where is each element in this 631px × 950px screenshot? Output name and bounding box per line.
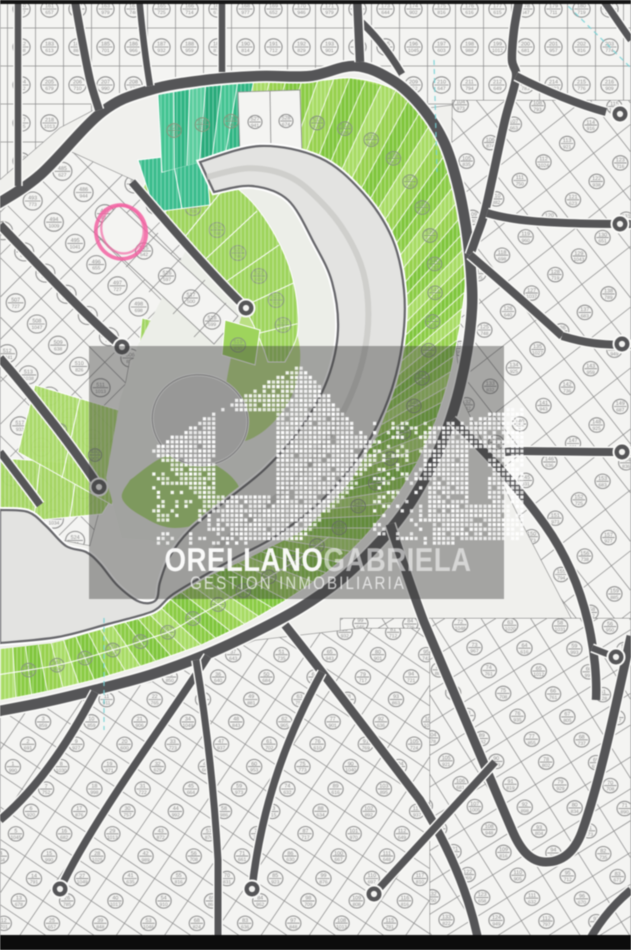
svg-text:683: 683 xyxy=(581,314,589,320)
svg-text:7: 7 xyxy=(45,784,48,790)
svg-text:657: 657 xyxy=(45,10,53,16)
svg-text:105: 105 xyxy=(410,739,419,745)
svg-text:794: 794 xyxy=(557,576,565,582)
svg-text:112: 112 xyxy=(398,828,407,834)
svg-text:125: 125 xyxy=(480,325,489,331)
svg-text:210: 210 xyxy=(437,80,446,86)
svg-text:973: 973 xyxy=(235,790,243,796)
svg-text:14: 14 xyxy=(31,873,37,879)
svg-text:20: 20 xyxy=(122,739,128,745)
svg-text:849: 849 xyxy=(406,183,414,189)
svg-text:112: 112 xyxy=(542,916,551,922)
svg-text:122: 122 xyxy=(592,176,601,182)
svg-text:45: 45 xyxy=(188,784,194,790)
svg-text:500: 500 xyxy=(187,299,195,305)
svg-text:114: 114 xyxy=(586,120,595,126)
svg-text:201: 201 xyxy=(549,42,558,48)
svg-text:687: 687 xyxy=(616,408,624,414)
svg-text:4: 4 xyxy=(0,851,2,857)
svg-text:943: 943 xyxy=(539,407,547,413)
svg-text:993: 993 xyxy=(570,650,578,656)
svg-text:83: 83 xyxy=(242,918,248,924)
svg-text:957: 957 xyxy=(549,48,557,54)
svg-text:843: 843 xyxy=(232,723,240,729)
svg-text:986: 986 xyxy=(220,813,228,819)
svg-text:644: 644 xyxy=(381,10,389,16)
svg-text:921: 921 xyxy=(442,762,450,768)
svg-text:216: 216 xyxy=(605,80,614,86)
svg-text:173: 173 xyxy=(381,4,390,10)
svg-text:109: 109 xyxy=(352,896,361,902)
svg-text:533: 533 xyxy=(313,118,322,124)
svg-text:794: 794 xyxy=(465,86,473,92)
svg-text:990: 990 xyxy=(9,768,17,774)
svg-text:112: 112 xyxy=(539,157,548,163)
svg-text:215: 215 xyxy=(577,80,586,86)
svg-text:99: 99 xyxy=(357,618,363,624)
svg-text:1009: 1009 xyxy=(48,223,59,229)
svg-text:202: 202 xyxy=(577,42,586,48)
svg-text:938: 938 xyxy=(593,183,601,189)
svg-text:207: 207 xyxy=(101,80,110,86)
svg-text:909: 909 xyxy=(605,86,613,92)
svg-text:670: 670 xyxy=(578,900,586,906)
svg-text:901: 901 xyxy=(325,48,333,54)
svg-text:709: 709 xyxy=(304,902,312,908)
svg-text:1048: 1048 xyxy=(455,626,466,632)
svg-text:992: 992 xyxy=(172,813,180,819)
svg-text:143: 143 xyxy=(586,363,595,369)
svg-text:701: 701 xyxy=(0,924,8,930)
svg-text:751: 751 xyxy=(431,265,439,271)
svg-text:1046: 1046 xyxy=(143,924,154,930)
svg-text:118: 118 xyxy=(498,250,507,256)
svg-text:174: 174 xyxy=(409,4,418,10)
svg-text:990: 990 xyxy=(45,857,53,863)
svg-text:74: 74 xyxy=(486,665,492,671)
svg-text:105: 105 xyxy=(442,756,451,762)
svg-text:137: 137 xyxy=(580,307,589,313)
svg-text:649: 649 xyxy=(493,86,501,92)
svg-text:117: 117 xyxy=(416,873,425,879)
svg-text:616: 616 xyxy=(520,649,528,655)
svg-text:761: 761 xyxy=(485,672,493,678)
svg-text:105: 105 xyxy=(462,156,471,162)
svg-text:509: 509 xyxy=(54,340,63,346)
svg-text:486: 486 xyxy=(79,187,88,193)
svg-text:697: 697 xyxy=(426,237,434,243)
svg-text:1012: 1012 xyxy=(492,48,503,54)
svg-text:22: 22 xyxy=(152,694,158,700)
svg-text:88: 88 xyxy=(318,806,324,812)
svg-text:752: 752 xyxy=(42,790,50,796)
svg-text:71: 71 xyxy=(622,803,628,809)
svg-text:600: 600 xyxy=(120,745,128,751)
svg-text:108: 108 xyxy=(485,824,494,830)
svg-text:90: 90 xyxy=(348,761,354,767)
svg-text:177: 177 xyxy=(493,4,502,10)
svg-text:108: 108 xyxy=(337,918,346,924)
svg-text:149: 149 xyxy=(616,401,625,407)
svg-text:83: 83 xyxy=(615,871,621,877)
svg-text:776: 776 xyxy=(577,86,585,92)
svg-text:542: 542 xyxy=(428,316,437,322)
svg-text:60: 60 xyxy=(251,761,257,767)
svg-text:95: 95 xyxy=(423,649,429,655)
svg-text:103: 103 xyxy=(379,784,388,790)
svg-text:652: 652 xyxy=(269,10,277,16)
svg-text:495: 495 xyxy=(71,238,80,244)
svg-text:527: 527 xyxy=(251,117,260,123)
svg-text:516: 516 xyxy=(163,271,172,277)
svg-text:56: 56 xyxy=(191,851,197,857)
svg-text:97: 97 xyxy=(290,918,296,924)
svg-text:534: 534 xyxy=(340,123,349,129)
svg-text:721: 721 xyxy=(407,678,415,684)
svg-text:517: 517 xyxy=(187,293,196,299)
svg-text:123: 123 xyxy=(478,892,487,898)
svg-text:691: 691 xyxy=(24,745,32,751)
svg-text:881: 881 xyxy=(247,701,255,707)
svg-text:188: 188 xyxy=(185,42,194,48)
svg-text:127: 127 xyxy=(527,288,536,294)
svg-text:538: 538 xyxy=(418,202,427,208)
svg-text:130: 130 xyxy=(598,232,607,238)
svg-text:682: 682 xyxy=(60,835,68,841)
svg-text:920: 920 xyxy=(27,813,35,819)
svg-text:634: 634 xyxy=(25,671,33,677)
svg-text:959: 959 xyxy=(185,48,193,54)
svg-text:949: 949 xyxy=(492,922,500,928)
svg-text:48: 48 xyxy=(233,717,239,723)
svg-text:165: 165 xyxy=(157,4,166,10)
svg-text:13: 13 xyxy=(16,896,22,902)
svg-text:113: 113 xyxy=(563,138,572,144)
svg-text:176: 176 xyxy=(465,4,474,10)
svg-text:55: 55 xyxy=(176,873,182,879)
svg-text:647: 647 xyxy=(437,86,445,92)
svg-text:53: 53 xyxy=(146,918,152,924)
svg-text:2: 2 xyxy=(27,739,30,745)
svg-text:111: 111 xyxy=(383,851,391,857)
svg-text:190: 190 xyxy=(241,42,250,48)
svg-text:946: 946 xyxy=(297,10,305,16)
svg-text:101: 101 xyxy=(349,828,358,834)
svg-text:169: 169 xyxy=(269,4,278,10)
svg-text:973: 973 xyxy=(551,519,559,525)
svg-text:714: 714 xyxy=(185,10,193,16)
svg-text:542: 542 xyxy=(140,252,148,258)
svg-text:49: 49 xyxy=(248,694,254,700)
svg-text:719: 719 xyxy=(551,276,559,282)
svg-text:56: 56 xyxy=(607,621,613,627)
svg-text:85: 85 xyxy=(272,873,278,879)
svg-text:736: 736 xyxy=(563,388,571,394)
svg-text:735: 735 xyxy=(170,132,178,138)
svg-text:211: 211 xyxy=(465,80,474,86)
svg-text:719: 719 xyxy=(577,10,585,16)
svg-text:831: 831 xyxy=(223,880,231,886)
svg-text:129: 129 xyxy=(574,251,583,257)
svg-text:41: 41 xyxy=(128,873,134,879)
svg-text:632: 632 xyxy=(283,790,291,796)
svg-text:507: 507 xyxy=(11,298,20,304)
svg-text:25: 25 xyxy=(49,918,55,924)
svg-text:711: 711 xyxy=(431,294,439,300)
svg-text:708: 708 xyxy=(499,695,507,701)
svg-text:86: 86 xyxy=(287,851,293,857)
svg-text:513: 513 xyxy=(24,370,33,376)
svg-text:530: 530 xyxy=(227,116,236,122)
svg-text:937: 937 xyxy=(413,812,421,818)
svg-text:663: 663 xyxy=(510,125,518,131)
svg-text:535: 535 xyxy=(367,134,376,140)
svg-text:1024: 1024 xyxy=(538,163,549,169)
svg-text:528: 528 xyxy=(170,125,179,131)
svg-text:124: 124 xyxy=(492,915,501,921)
svg-text:781: 781 xyxy=(386,924,394,930)
svg-text:159: 159 xyxy=(610,589,619,595)
svg-text:643: 643 xyxy=(229,656,237,662)
svg-text:82: 82 xyxy=(600,848,606,854)
svg-text:68: 68 xyxy=(579,735,585,741)
svg-text:77: 77 xyxy=(529,734,535,740)
svg-text:651: 651 xyxy=(599,239,607,245)
svg-text:50: 50 xyxy=(263,672,269,678)
svg-text:92: 92 xyxy=(378,717,384,723)
svg-text:944: 944 xyxy=(80,194,88,200)
svg-text:848: 848 xyxy=(289,924,297,930)
svg-text:73: 73 xyxy=(472,642,478,648)
svg-text:185: 185 xyxy=(101,42,110,48)
svg-text:493: 493 xyxy=(28,196,37,202)
svg-text:859: 859 xyxy=(87,723,95,729)
svg-text:214: 214 xyxy=(549,80,558,86)
svg-text:32: 32 xyxy=(155,761,161,767)
svg-text:921: 921 xyxy=(563,145,571,151)
svg-text:950: 950 xyxy=(606,628,614,634)
svg-text:822: 822 xyxy=(442,921,450,927)
svg-text:111: 111 xyxy=(528,893,536,899)
svg-text:988: 988 xyxy=(465,48,473,54)
svg-text:791: 791 xyxy=(30,880,38,886)
svg-text:636: 636 xyxy=(377,723,385,729)
svg-text:916: 916 xyxy=(587,126,595,132)
svg-text:65: 65 xyxy=(327,649,333,655)
svg-text:967: 967 xyxy=(470,649,478,655)
svg-text:953: 953 xyxy=(250,768,258,774)
svg-text:716: 716 xyxy=(616,164,624,170)
svg-text:106: 106 xyxy=(486,137,495,143)
svg-text:630: 630 xyxy=(286,857,294,863)
svg-text:808: 808 xyxy=(353,902,361,908)
svg-text:711: 711 xyxy=(550,10,558,16)
svg-text:973: 973 xyxy=(457,106,465,112)
svg-text:208: 208 xyxy=(129,80,138,86)
svg-text:74: 74 xyxy=(284,784,290,790)
svg-text:200: 200 xyxy=(521,42,530,48)
svg-text:1045: 1045 xyxy=(408,48,419,54)
svg-text:826: 826 xyxy=(75,368,83,374)
svg-text:70: 70 xyxy=(607,780,613,786)
svg-text:769: 769 xyxy=(362,745,370,751)
svg-text:76: 76 xyxy=(315,739,321,745)
svg-text:654: 654 xyxy=(0,857,5,863)
svg-text:816: 816 xyxy=(437,10,445,16)
svg-text:603: 603 xyxy=(437,48,445,54)
svg-text:122: 122 xyxy=(463,869,472,875)
svg-text:927: 927 xyxy=(604,539,612,545)
svg-text:683: 683 xyxy=(599,482,607,488)
svg-text:684: 684 xyxy=(262,678,270,684)
svg-text:84: 84 xyxy=(407,619,413,625)
svg-text:717: 717 xyxy=(301,835,309,841)
svg-text:107: 107 xyxy=(470,801,479,807)
svg-text:901: 901 xyxy=(374,656,382,662)
svg-text:859: 859 xyxy=(39,723,47,729)
svg-text:892: 892 xyxy=(365,812,373,818)
svg-text:1013: 1013 xyxy=(44,124,55,130)
svg-text:932: 932 xyxy=(341,633,349,639)
svg-text:138: 138 xyxy=(604,289,613,295)
svg-text:39: 39 xyxy=(97,918,103,924)
svg-text:148: 148 xyxy=(592,420,601,426)
svg-text:183: 183 xyxy=(45,42,54,48)
svg-text:498: 498 xyxy=(134,302,143,308)
svg-text:773: 773 xyxy=(29,202,37,208)
svg-text:746: 746 xyxy=(227,122,235,128)
svg-text:1020: 1020 xyxy=(505,626,516,632)
svg-text:218: 218 xyxy=(45,118,54,124)
svg-text:761: 761 xyxy=(549,695,557,701)
svg-text:938: 938 xyxy=(367,141,375,147)
svg-text:641: 641 xyxy=(136,643,144,649)
svg-text:1049: 1049 xyxy=(77,880,88,886)
svg-text:636: 636 xyxy=(545,463,553,469)
svg-text:126: 126 xyxy=(504,306,513,312)
svg-text:727: 727 xyxy=(113,287,121,293)
svg-text:510: 510 xyxy=(75,361,84,367)
svg-text:GESTION INMOBILIARIA: GESTION INMOBILIARIA xyxy=(190,573,406,593)
svg-text:1025: 1025 xyxy=(92,857,103,863)
svg-text:977: 977 xyxy=(241,10,249,16)
svg-text:116: 116 xyxy=(401,896,410,902)
svg-text:209: 209 xyxy=(409,80,418,86)
svg-text:152: 152 xyxy=(574,495,583,501)
svg-text:1045: 1045 xyxy=(10,835,21,841)
svg-text:634: 634 xyxy=(317,812,325,818)
svg-text:87: 87 xyxy=(303,828,309,834)
svg-text:885: 885 xyxy=(610,595,618,601)
svg-text:712: 712 xyxy=(564,877,572,883)
svg-text:727: 727 xyxy=(12,304,20,310)
svg-text:47: 47 xyxy=(218,739,224,745)
svg-text:679: 679 xyxy=(45,86,53,92)
svg-text:702: 702 xyxy=(265,745,273,751)
svg-text:75: 75 xyxy=(500,688,506,694)
svg-text:63: 63 xyxy=(297,694,303,700)
svg-text:512: 512 xyxy=(3,348,12,354)
svg-text:860: 860 xyxy=(164,633,172,639)
svg-text:34: 34 xyxy=(185,717,191,723)
svg-text:872: 872 xyxy=(157,835,165,841)
svg-text:161: 161 xyxy=(45,4,54,10)
svg-text:636: 636 xyxy=(241,924,249,930)
svg-text:77: 77 xyxy=(330,717,336,723)
svg-text:871: 871 xyxy=(105,768,113,774)
svg-text:180: 180 xyxy=(577,4,586,10)
svg-text:599: 599 xyxy=(208,322,216,328)
svg-text:1030: 1030 xyxy=(56,768,67,774)
svg-text:44: 44 xyxy=(173,806,179,812)
svg-text:979: 979 xyxy=(325,10,333,16)
svg-text:627: 627 xyxy=(58,172,66,178)
svg-text:937: 937 xyxy=(217,745,225,751)
svg-text:102: 102 xyxy=(364,806,373,812)
svg-text:141: 141 xyxy=(539,400,548,406)
svg-text:635: 635 xyxy=(81,659,89,665)
svg-text:708: 708 xyxy=(190,857,198,863)
svg-text:789: 789 xyxy=(604,295,612,301)
svg-text:163: 163 xyxy=(101,4,110,10)
svg-text:616: 616 xyxy=(465,10,473,16)
svg-text:98: 98 xyxy=(305,896,311,902)
svg-text:94: 94 xyxy=(408,672,414,678)
svg-text:923: 923 xyxy=(271,880,279,886)
svg-text:805: 805 xyxy=(563,718,571,724)
svg-text:212: 212 xyxy=(493,80,502,86)
svg-text:496: 496 xyxy=(92,259,101,265)
svg-text:750: 750 xyxy=(516,182,524,188)
svg-text:29: 29 xyxy=(109,829,115,835)
svg-text:59: 59 xyxy=(236,784,242,790)
svg-text:110: 110 xyxy=(368,873,377,879)
svg-text:540: 540 xyxy=(430,259,439,265)
svg-text:27: 27 xyxy=(79,873,85,879)
svg-text:199: 199 xyxy=(493,42,502,48)
svg-text:910: 910 xyxy=(160,902,168,908)
svg-text:876: 876 xyxy=(319,880,327,886)
svg-text:135: 135 xyxy=(533,344,542,350)
svg-text:904: 904 xyxy=(53,666,61,672)
svg-text:738: 738 xyxy=(581,557,589,563)
svg-text:967: 967 xyxy=(389,159,397,165)
svg-text:157: 157 xyxy=(604,532,613,538)
svg-text:725: 725 xyxy=(575,501,583,507)
svg-text:99: 99 xyxy=(321,873,327,879)
svg-text:78: 78 xyxy=(543,757,549,763)
svg-text:785: 785 xyxy=(63,902,71,908)
svg-text:941: 941 xyxy=(251,123,259,129)
svg-text:678: 678 xyxy=(15,902,23,908)
svg-text:655: 655 xyxy=(92,266,100,272)
svg-text:10: 10 xyxy=(88,717,94,723)
svg-text:111: 111 xyxy=(516,175,524,181)
svg-text:1047: 1047 xyxy=(31,325,42,331)
svg-text:810: 810 xyxy=(416,880,424,886)
svg-text:95: 95 xyxy=(565,871,571,877)
svg-text:1034: 1034 xyxy=(48,520,59,526)
svg-text:91: 91 xyxy=(508,779,514,785)
svg-text:629: 629 xyxy=(154,768,162,774)
svg-text:79: 79 xyxy=(557,780,563,786)
svg-text:814: 814 xyxy=(241,48,249,54)
svg-text:18: 18 xyxy=(91,784,97,790)
svg-text:876: 876 xyxy=(75,813,83,819)
svg-text:616: 616 xyxy=(332,790,340,796)
svg-text:147: 147 xyxy=(569,438,578,444)
svg-text:943: 943 xyxy=(326,656,334,662)
